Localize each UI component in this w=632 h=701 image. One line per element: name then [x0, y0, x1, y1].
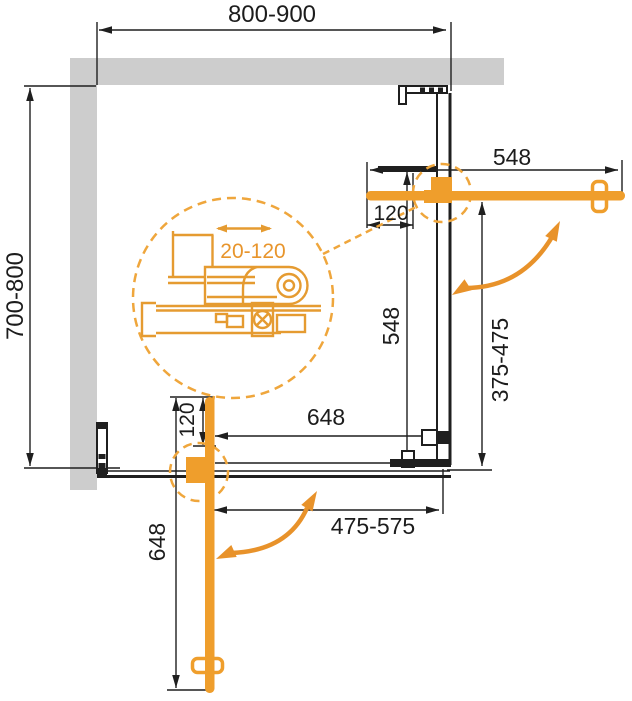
clamp-body	[205, 267, 307, 304]
dimension-arrowheads	[26, 26, 618, 688]
dim-bottom-opening-range: 475-575	[303, 513, 443, 539]
dim-right-opening-range: 375-475	[487, 300, 513, 420]
dim-bottom-door-open-width: 648	[144, 482, 170, 602]
dim-bottom-door-closed-width: 648	[276, 404, 376, 430]
bottom-corner-profile	[390, 459, 451, 467]
left-wall	[70, 58, 97, 490]
dim-bottom-wall-offset: 120	[175, 360, 201, 480]
installation-diagram: 800-900 700-800 548 120 548 375-475 20-1…	[0, 0, 632, 701]
dim-right-door-closed-width: 548	[378, 266, 404, 386]
bottom-door-panel	[205, 397, 215, 693]
top-door-swing-arrow	[463, 237, 552, 288]
glass-edge-lines	[168, 277, 206, 283]
dim-adjustment-range: 20-120	[193, 239, 313, 265]
dim-top-door-open-width: 548	[462, 144, 562, 170]
bottom-door-swing-arrow	[231, 508, 307, 553]
dim-top-wall-offset: 120	[366, 201, 416, 227]
roller-wheel	[278, 274, 301, 297]
dimension-lines	[24, 22, 622, 690]
dim-overall-width: 800-900	[147, 2, 397, 28]
dim-overall-depth: 700-800	[3, 236, 29, 356]
diagram-linework	[0, 0, 632, 701]
top-wall	[70, 58, 504, 85]
lower-track	[156, 306, 321, 333]
top-door-panel	[366, 191, 625, 201]
